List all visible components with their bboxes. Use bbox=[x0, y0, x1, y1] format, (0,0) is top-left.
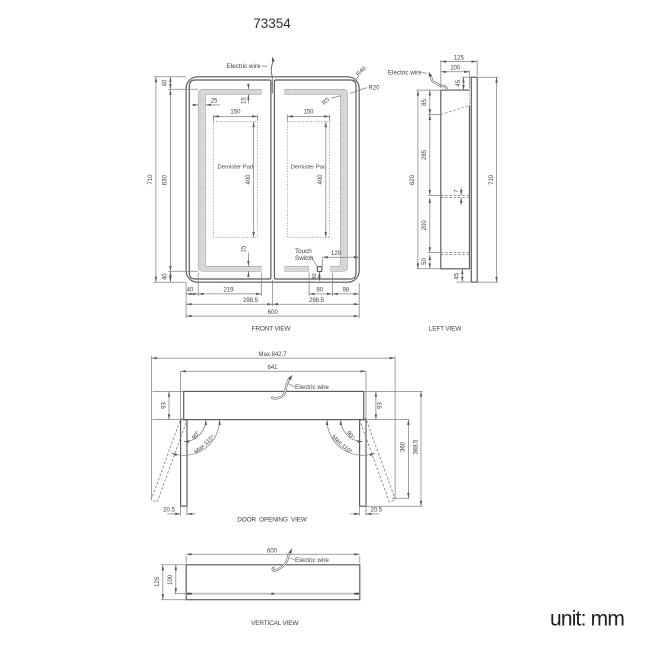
svg-text:Demister Pad: Demister Pad bbox=[218, 165, 254, 171]
svg-text:Touch: Touch bbox=[295, 248, 312, 255]
svg-text:85: 85 bbox=[422, 99, 428, 106]
svg-text:FRONT VIEW: FRONT VIEW bbox=[252, 326, 292, 333]
svg-text:73354: 73354 bbox=[253, 16, 291, 31]
svg-text:400: 400 bbox=[246, 174, 252, 185]
svg-text:298.5: 298.5 bbox=[243, 298, 259, 304]
svg-text:600: 600 bbox=[268, 310, 279, 316]
svg-text:50: 50 bbox=[422, 258, 428, 265]
svg-text:100: 100 bbox=[168, 574, 174, 585]
svg-text:298.5: 298.5 bbox=[309, 298, 325, 304]
svg-text:VERTICAL VIEW: VERTICAL VIEW bbox=[251, 620, 299, 627]
svg-text:150: 150 bbox=[230, 110, 241, 116]
svg-text:600: 600 bbox=[267, 548, 278, 554]
svg-text:368.5: 368.5 bbox=[413, 439, 419, 455]
svg-text:285: 285 bbox=[422, 149, 428, 160]
svg-text:R20: R20 bbox=[369, 86, 381, 92]
svg-text:unit: mm: unit: mm bbox=[550, 608, 624, 631]
svg-text:93: 93 bbox=[378, 402, 384, 409]
svg-text:100: 100 bbox=[450, 66, 461, 72]
svg-text:LEFT VIEW: LEFT VIEW bbox=[429, 326, 462, 333]
svg-text:Electric wire: Electric wire bbox=[295, 557, 329, 564]
svg-text:15: 15 bbox=[241, 245, 247, 252]
svg-text:Electric wire: Electric wire bbox=[227, 63, 261, 70]
svg-text:Electric wire: Electric wire bbox=[388, 70, 422, 77]
svg-text:710: 710 bbox=[489, 174, 495, 185]
svg-text:40: 40 bbox=[187, 288, 194, 294]
svg-text:620: 620 bbox=[410, 174, 416, 185]
svg-text:30: 30 bbox=[312, 273, 318, 279]
svg-text:93: 93 bbox=[161, 402, 167, 409]
svg-text:7: 7 bbox=[454, 189, 460, 192]
svg-text:Electric wire: Electric wire bbox=[295, 384, 329, 391]
svg-text:45: 45 bbox=[455, 272, 461, 279]
svg-text:DOOR OPENING VIEW: DOOR OPENING VIEW bbox=[237, 516, 308, 523]
svg-text:219: 219 bbox=[223, 288, 234, 294]
svg-text:Demister Pad: Demister Pad bbox=[291, 165, 327, 171]
svg-text:630: 630 bbox=[163, 175, 169, 186]
svg-text:200: 200 bbox=[422, 220, 428, 231]
svg-text:150: 150 bbox=[303, 110, 314, 116]
svg-text:80: 80 bbox=[316, 288, 323, 294]
svg-text:20.5: 20.5 bbox=[371, 508, 383, 514]
svg-text:15: 15 bbox=[241, 97, 247, 104]
svg-text:Max.842.7: Max.842.7 bbox=[258, 352, 287, 358]
svg-text:129: 129 bbox=[331, 251, 342, 257]
svg-text:45: 45 bbox=[456, 79, 462, 86]
svg-text:641: 641 bbox=[267, 365, 278, 371]
svg-text:Switch: Switch bbox=[295, 255, 314, 262]
svg-text:125: 125 bbox=[454, 55, 465, 61]
svg-text:25: 25 bbox=[211, 99, 218, 105]
svg-text:40: 40 bbox=[163, 79, 169, 86]
svg-text:20.5: 20.5 bbox=[163, 508, 175, 514]
svg-text:710: 710 bbox=[148, 174, 154, 185]
svg-text:125: 125 bbox=[155, 576, 161, 587]
svg-text:400: 400 bbox=[318, 174, 324, 185]
svg-text:360: 360 bbox=[401, 441, 407, 452]
svg-text:98: 98 bbox=[342, 288, 349, 294]
svg-text:40: 40 bbox=[163, 273, 169, 280]
